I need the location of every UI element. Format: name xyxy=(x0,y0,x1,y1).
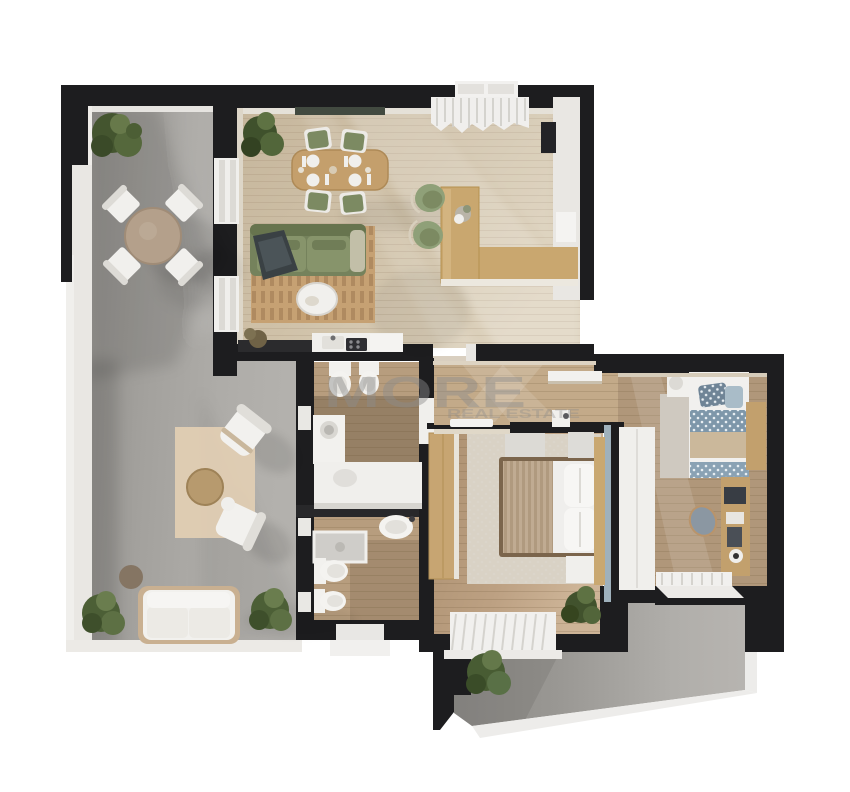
svg-text:REAL ESTATE: REAL ESTATE xyxy=(447,407,580,421)
